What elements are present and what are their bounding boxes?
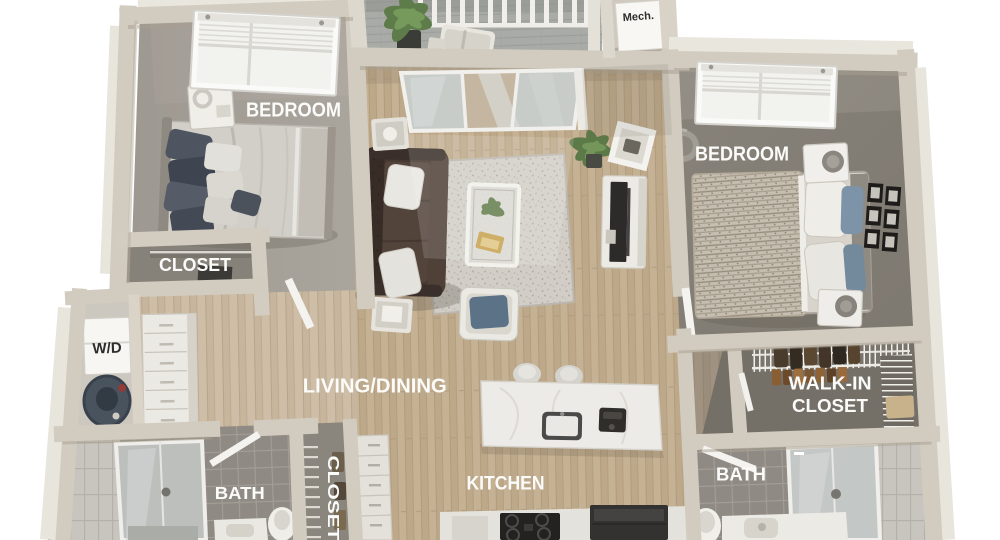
svg-text:W/D: W/D <box>92 339 122 357</box>
svg-text:WALK-IN: WALK-IN <box>789 373 872 394</box>
svg-text:KITCHEN: KITCHEN <box>467 473 545 495</box>
svg-text:CLOSET: CLOSET <box>324 456 341 540</box>
svg-text:CLOSET: CLOSET <box>159 255 231 275</box>
svg-text:BEDROOM: BEDROOM <box>695 144 789 166</box>
svg-text:LIVING/DINING: LIVING/DINING <box>303 374 447 397</box>
svg-text:Mech.: Mech. <box>622 10 654 24</box>
svg-text:CLOSET: CLOSET <box>792 395 869 416</box>
svg-text:BATH: BATH <box>716 464 766 485</box>
svg-text:BATH: BATH <box>215 483 265 503</box>
svg-text:BEDROOM: BEDROOM <box>246 100 341 122</box>
